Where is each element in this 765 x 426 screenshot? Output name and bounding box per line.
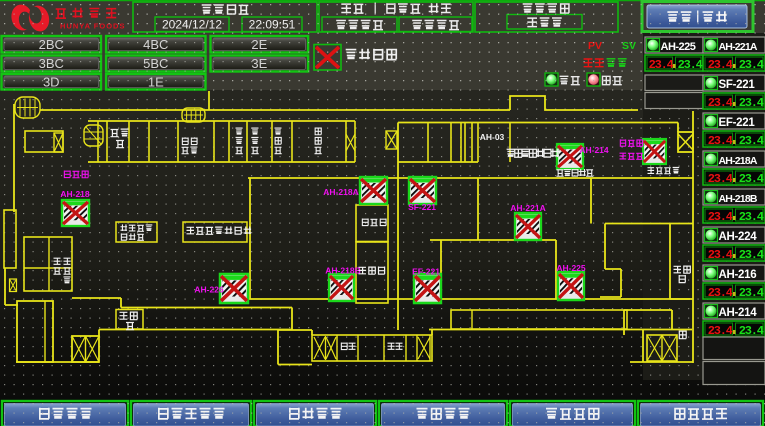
svg-text:SF-221: SF-221 [719, 79, 756, 91]
svg-text:23.4: 23.4 [708, 248, 733, 262]
svg-text:23.4: 23.4 [708, 210, 733, 224]
svg-text:23.4: 23.4 [708, 134, 733, 148]
svg-text:AH-218A: AH-218A [323, 187, 358, 197]
svg-text:AH-218A: AH-218A [719, 155, 758, 167]
svg-text:23.4: 23.4 [708, 96, 733, 110]
svg-text:23.4: 23.4 [739, 58, 764, 72]
svg-text:AH-226: AH-226 [194, 285, 224, 295]
svg-text:23.4: 23.4 [649, 58, 674, 72]
svg-text:23.4: 23.4 [708, 286, 733, 300]
svg-text:23.4: 23.4 [739, 96, 764, 110]
svg-text:AH-218B: AH-218B [719, 193, 758, 205]
svg-text:23.4: 23.4 [739, 172, 764, 186]
svg-text:AH-224: AH-224 [719, 231, 758, 243]
svg-text:AH-216: AH-216 [719, 269, 757, 281]
svg-text:23.4: 23.4 [739, 324, 764, 338]
svg-text:SF-221: SF-221 [408, 202, 436, 212]
svg-text:AH-225: AH-225 [661, 41, 696, 53]
svg-text:23.4: 23.4 [739, 210, 764, 224]
svg-text:AH-214: AH-214 [719, 307, 758, 319]
svg-text:AH-218B: AH-218B [325, 266, 360, 276]
svg-text:23.4: 23.4 [708, 58, 733, 72]
svg-text:AH-218: AH-218 [60, 189, 90, 199]
svg-text:EF-221: EF-221 [412, 267, 440, 277]
svg-text:AH-214: AH-214 [579, 145, 609, 155]
svg-text:23.4: 23.4 [739, 286, 764, 300]
svg-text:23.4: 23.4 [708, 324, 733, 338]
svg-text:EF-221: EF-221 [719, 117, 756, 129]
svg-text:AH-225: AH-225 [556, 263, 586, 273]
svg-text:AH-221A: AH-221A [719, 41, 758, 53]
svg-text:23.4: 23.4 [739, 134, 764, 148]
svg-text:AH-03: AH-03 [480, 132, 505, 142]
svg-text:23.4: 23.4 [708, 172, 733, 186]
svg-text:AH-221A: AH-221A [510, 203, 545, 213]
svg-text:23.4: 23.4 [739, 248, 764, 262]
svg-text:23.4: 23.4 [678, 58, 703, 72]
